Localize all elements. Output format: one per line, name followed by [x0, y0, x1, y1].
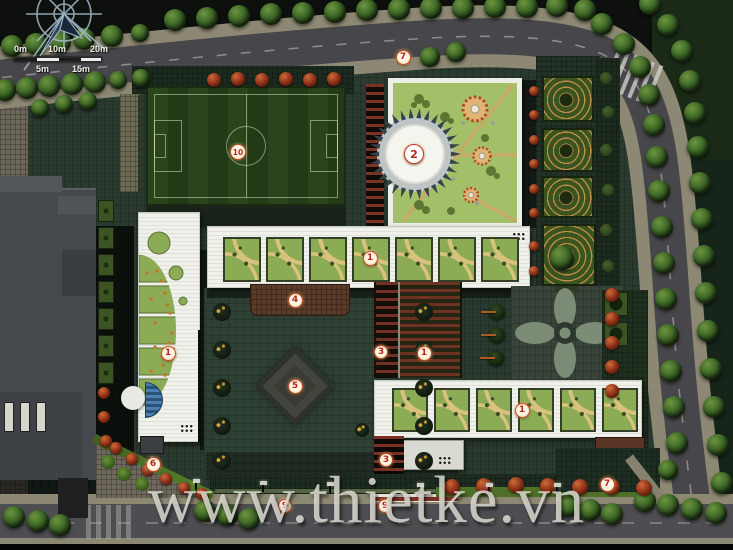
plan-marker-1: 1 — [363, 251, 378, 266]
plan-marker-7: 7 — [396, 50, 411, 65]
plan-marker-1: 1 — [417, 346, 432, 361]
scale-bar: 0m 10m 20m 5m 15m — [12, 44, 116, 78]
plan-marker-10: 10 — [230, 144, 246, 160]
plan-marker-9: 9 — [278, 499, 292, 513]
scale-label: 5m — [36, 64, 49, 74]
plan-marker-2: 2 — [404, 144, 424, 164]
scale-bar-rule — [14, 57, 102, 62]
plan-marker-5: 5 — [288, 379, 303, 394]
site-plan-canvas: 7210143151163997 0m 10m 20m 5m 15m www.t… — [0, 0, 733, 550]
plan-marker-7: 7 — [600, 477, 615, 492]
plan-marker-4: 4 — [288, 293, 303, 308]
plan-marker-1: 1 — [515, 403, 530, 418]
plan-marker-3: 3 — [379, 453, 393, 467]
scale-label: 15m — [72, 64, 90, 74]
plan-marker-3: 3 — [374, 345, 388, 359]
scale-label: 20m — [90, 44, 108, 54]
plan-markers-layer: 7210143151163997 — [0, 0, 733, 550]
plan-marker-6: 6 — [146, 457, 161, 472]
plan-marker-1: 1 — [161, 346, 176, 361]
scale-label: 0m — [14, 44, 27, 54]
plan-marker-9: 9 — [378, 499, 392, 513]
scale-label: 10m — [48, 44, 66, 54]
